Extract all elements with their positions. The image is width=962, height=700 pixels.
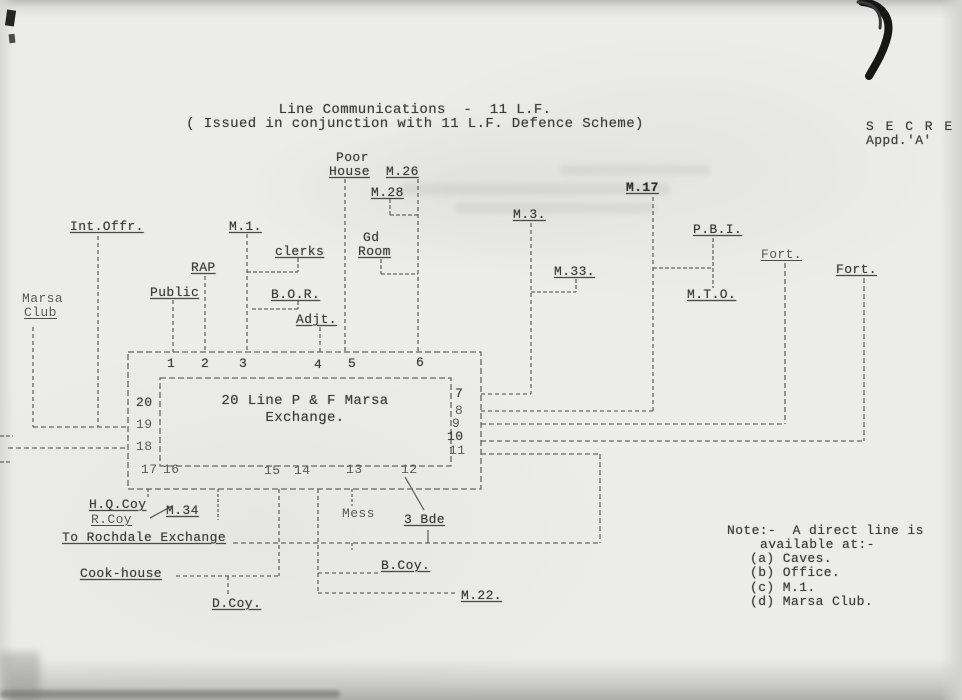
note-item-d: (d) Marsa Club.: [750, 595, 873, 609]
exchange-line-number-11: 11: [449, 444, 465, 458]
node-rap: RAP: [191, 261, 216, 275]
exchange-line-number-15: 15: [264, 464, 280, 478]
scanned-document-page: S E C R E T Appd.'A' Line Communications…: [0, 0, 962, 700]
node-m34: M.34: [166, 504, 199, 518]
exchange-line-number-20: 20: [136, 396, 152, 410]
node-pbi: P.B.I.: [693, 223, 742, 237]
node-bor: B.O.R.: [271, 288, 320, 302]
exchange-label: 20 Line P & F Marsa: [160, 394, 450, 409]
node-m22: M.22.: [461, 589, 502, 603]
page-subtitle: ( Issued in conjunction with 11 L.F. Def…: [180, 117, 650, 132]
node-gd-room: Room: [358, 245, 391, 259]
node-r-coy: R.Coy: [91, 513, 132, 527]
node-poor-house: House: [329, 165, 370, 179]
node-adjt: Adjt.: [296, 313, 337, 327]
node-m17: M.17: [626, 181, 659, 195]
node-mto: M.T.O.: [687, 288, 736, 302]
exchange-line-number-13: 13: [346, 463, 362, 477]
node-b-coy: B.Coy.: [381, 559, 430, 573]
node-fort-right: Fort.: [836, 263, 877, 277]
node-3-bde: 3 Bde: [404, 513, 445, 527]
exchange-line-number-1: 1: [167, 357, 175, 371]
node-mess: Mess: [342, 507, 375, 521]
exchange-line-number-6: 6: [416, 356, 424, 370]
node-fort-left: Fort.: [761, 248, 802, 262]
exchange-line-number-18: 18: [136, 440, 152, 454]
exchange-line-number-3: 3: [239, 357, 247, 371]
appendix-stamp: Appd.'A': [866, 134, 932, 148]
node-m1: M.1.: [229, 220, 262, 234]
node-hq-coy: H.Q.Coy: [89, 498, 146, 512]
node-cook-house: Cook-house: [80, 567, 162, 581]
node-m26: M.26: [386, 165, 419, 179]
node-int-offr: Int.Offr.: [70, 220, 144, 234]
node-m33: M.33.: [554, 265, 595, 279]
exchange-line-number-4: 4: [314, 358, 322, 372]
node-clerks: clerks: [275, 245, 324, 259]
exchange-line-number-14: 14: [294, 464, 310, 478]
exchange-line-number-2: 2: [201, 357, 209, 371]
exchange-line-number-7: 7: [455, 387, 463, 401]
exchange-line-number-16: 16: [163, 463, 179, 477]
node-m3: M.3.: [513, 208, 546, 222]
exchange-line-number-5: 5: [348, 357, 356, 371]
exchange-line-number-19: 19: [136, 418, 152, 432]
node-d-coy: D.Coy.: [212, 597, 261, 611]
node-rochdale-exchange: To Rochdale Exchange: [62, 531, 226, 545]
node-m28: M.28: [371, 186, 404, 200]
node-public: Public: [150, 286, 199, 300]
exchange-line-number-12: 12: [401, 463, 417, 477]
note-item-b: (b) Office.: [750, 566, 840, 580]
node-marsa-club: Club: [24, 306, 57, 320]
exchange-label: Exchange.: [160, 411, 450, 426]
exchange-line-number-17: 17: [141, 463, 157, 477]
